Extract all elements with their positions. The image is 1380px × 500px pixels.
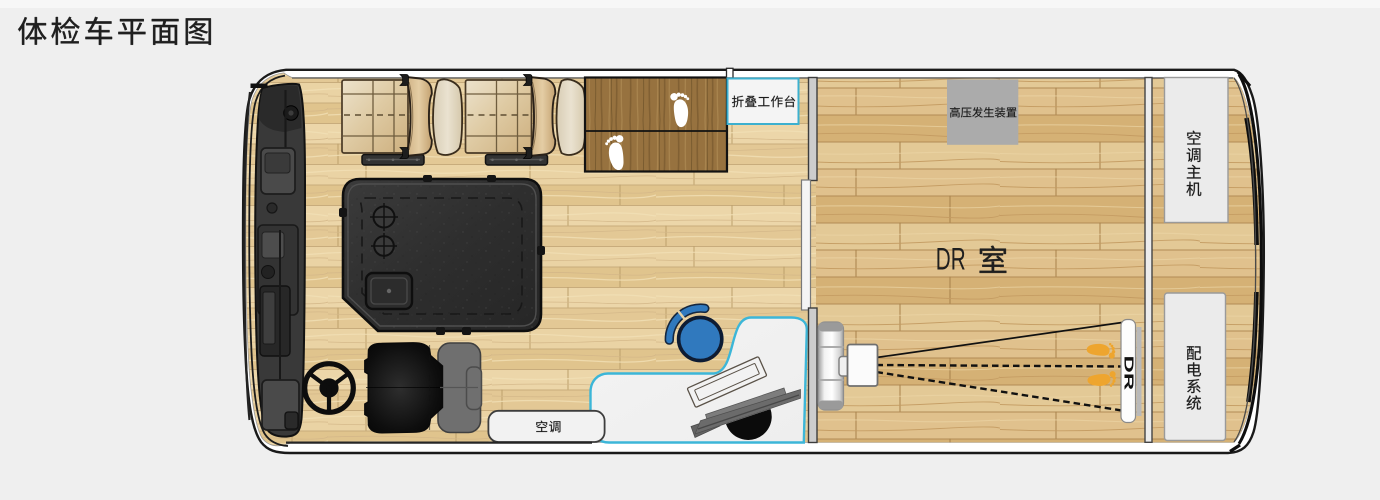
svg-text:DR: DR <box>1121 356 1135 391</box>
svg-text:DR: DR <box>936 241 966 276</box>
